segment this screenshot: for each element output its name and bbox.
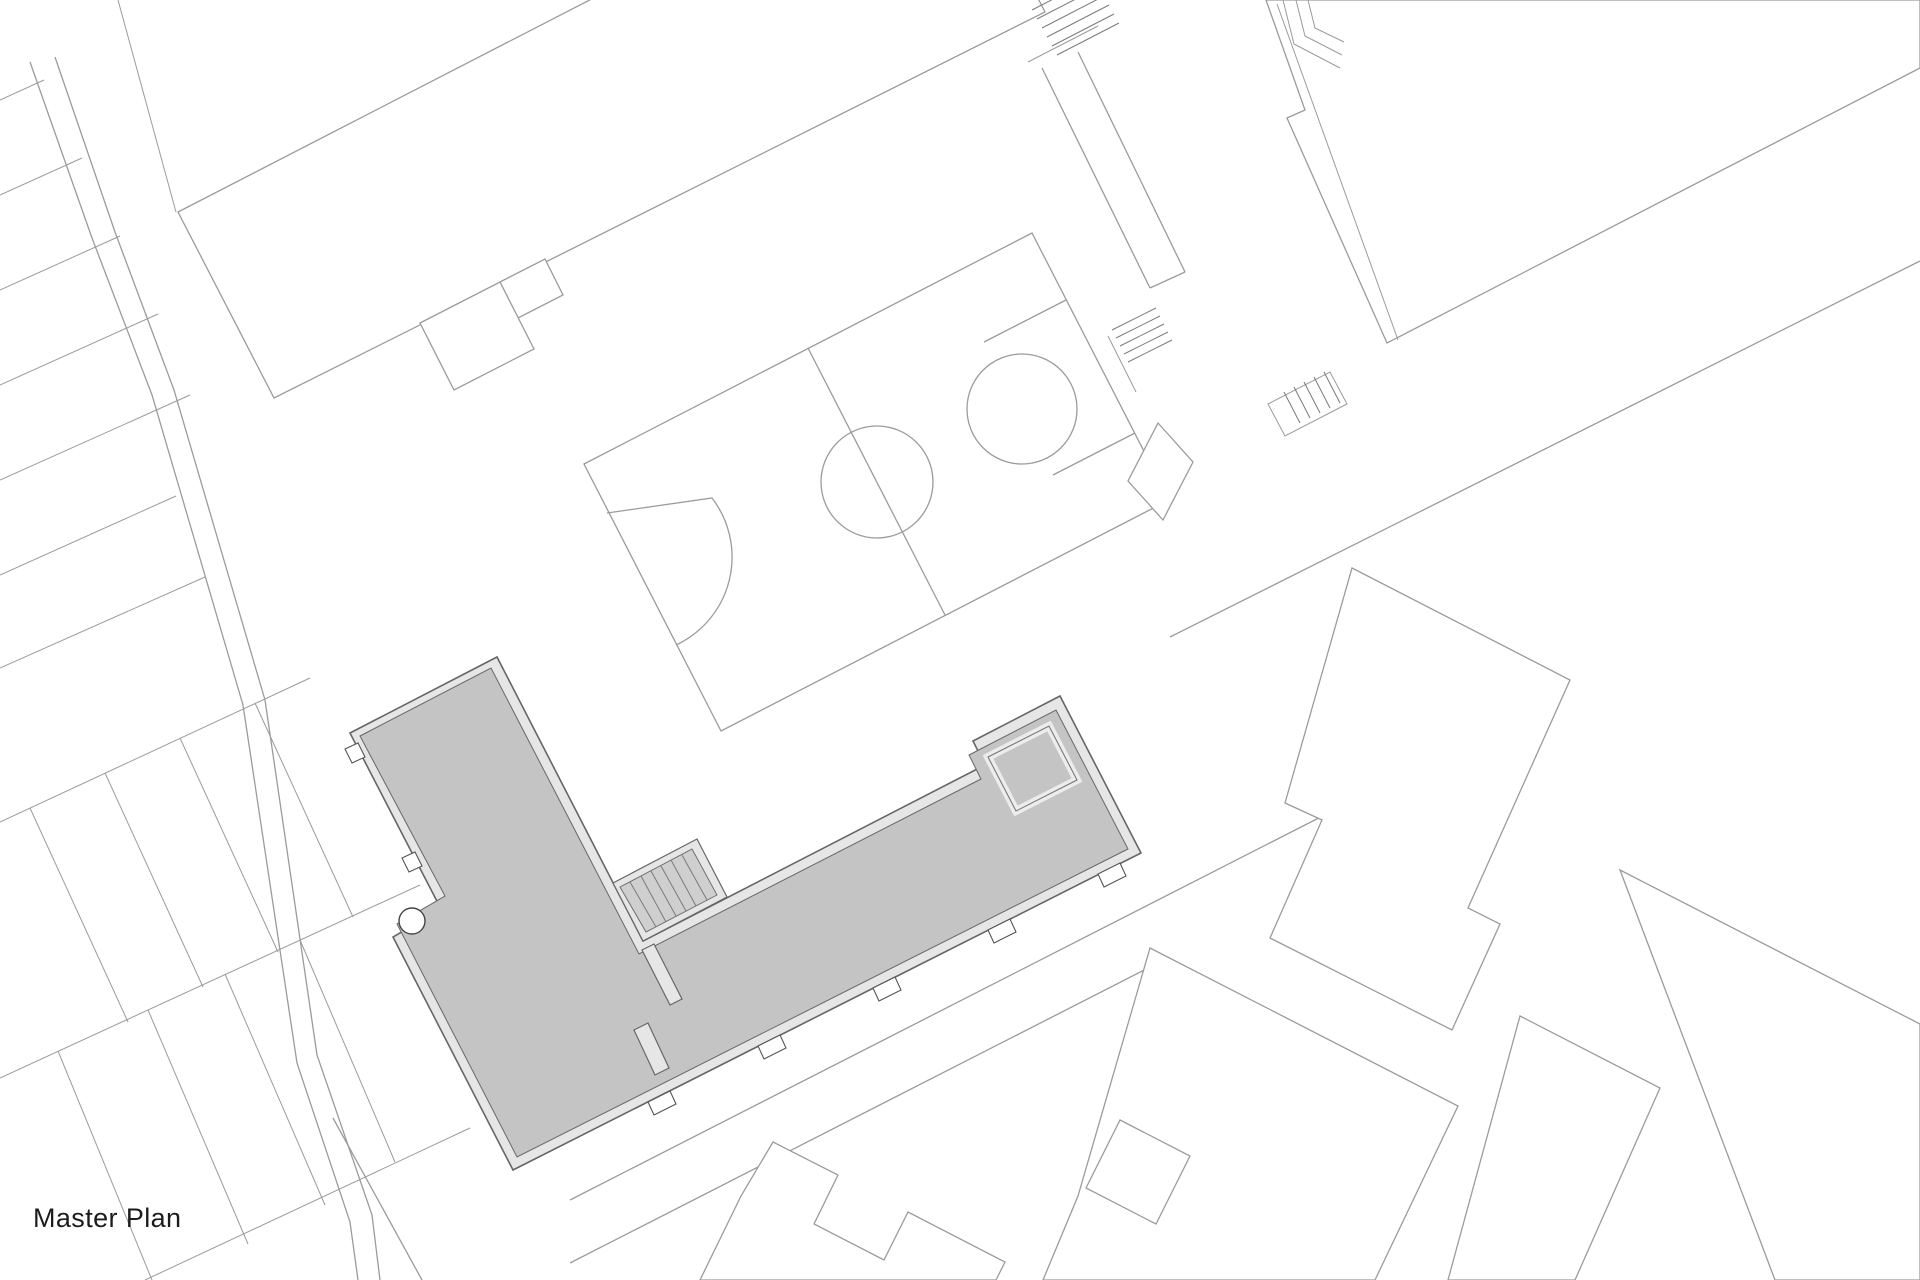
walkway-strip — [1028, 0, 1185, 392]
square-pad — [1128, 423, 1193, 520]
building-top-right — [1266, 0, 1920, 436]
master-plan-page: Master Plan — [0, 0, 1920, 1280]
building-bottom-right-corner — [1448, 1016, 1660, 1280]
stair-strip-bottom — [1108, 308, 1172, 392]
building-bottom-center — [700, 1142, 1005, 1280]
court-center-line — [808, 348, 945, 615]
garden-plots-top-left — [0, 0, 205, 668]
court-free-throw-circle-east — [967, 354, 1077, 464]
plan-title: Master Plan — [33, 1203, 181, 1234]
building-right-notched — [1270, 568, 1570, 1030]
highlighted-building — [345, 657, 1141, 1170]
court-three-point-arc-west — [607, 498, 732, 645]
circle-element — [399, 908, 425, 934]
site-plan — [0, 0, 1920, 1280]
building-top-left — [178, 0, 1045, 398]
basketball-court — [584, 233, 1169, 731]
stair-building-right — [1268, 372, 1347, 436]
building-far-right — [1620, 870, 1920, 1280]
